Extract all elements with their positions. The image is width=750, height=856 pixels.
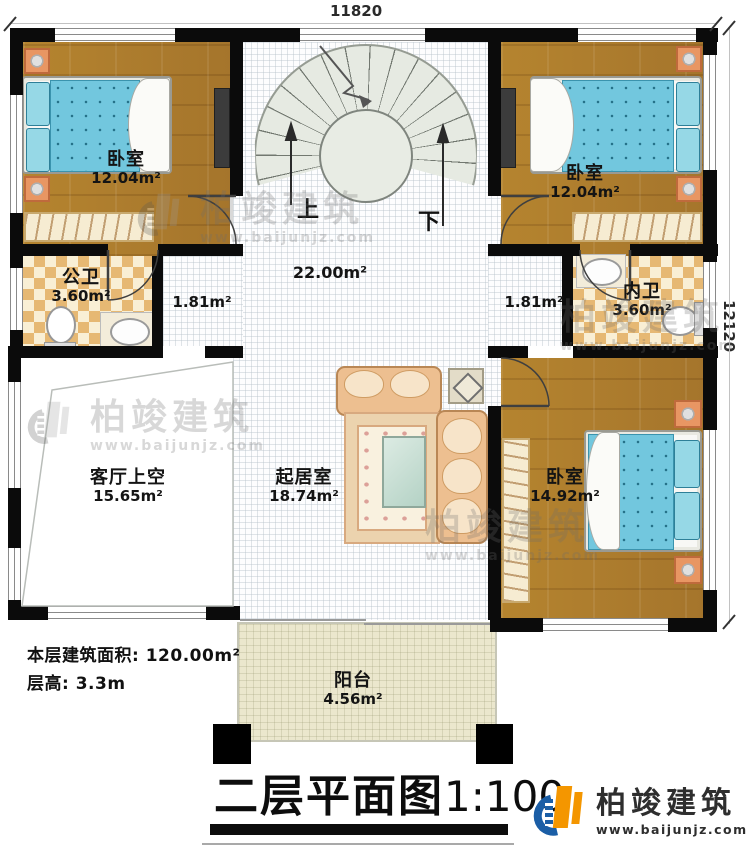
label-bedroom-top-left: 卧室 12.04m²: [66, 150, 186, 187]
room-area: 15.65m²: [48, 488, 208, 505]
label-corridor-left-area: 1.81m²: [142, 293, 262, 311]
wall-segment: [630, 244, 718, 256]
wall-segment: [573, 346, 718, 358]
stair-down-label: 下: [418, 204, 440, 236]
toilet: [46, 306, 76, 344]
label-living-void: 客厅上空 15.65m²: [48, 468, 208, 505]
room-name: 内卫: [582, 282, 702, 302]
label-balcony: 阳台 4.56m²: [293, 671, 413, 708]
logo-windows: [545, 799, 553, 826]
brand-site: www.baijunjz.com: [596, 822, 748, 837]
sofa-cushion: [344, 370, 384, 398]
window: [543, 618, 668, 632]
room-name: 客厅上空: [48, 468, 208, 488]
window: [55, 28, 175, 42]
room-area: 4.56m²: [293, 691, 413, 708]
pillow: [26, 82, 50, 126]
spiral-stair-center: [319, 109, 413, 203]
nightstand: [676, 46, 702, 72]
nightstand: [676, 176, 702, 202]
pillow: [26, 128, 50, 172]
bed-mattress: [562, 80, 674, 172]
wall-segment: [205, 346, 243, 358]
room-area: 12.04m²: [525, 184, 645, 201]
nightstand: [24, 176, 50, 202]
dimension-top-value: 11820: [330, 2, 382, 20]
pillow: [674, 492, 700, 540]
brand-logo-icon: [534, 784, 588, 842]
sofa-cushion: [390, 370, 430, 398]
label-hall-area: 22.00m²: [270, 263, 390, 282]
wall-segment: [8, 346, 163, 358]
pillow: [674, 440, 700, 488]
room-name: 阳台: [293, 671, 413, 691]
wall-segment: [488, 244, 580, 256]
room-name: 卧室: [66, 150, 186, 170]
window: [703, 430, 717, 590]
duvet: [530, 78, 574, 172]
stair-up-label: 上: [297, 192, 319, 224]
title-underline: [210, 824, 508, 835]
wall-segment: [158, 244, 243, 256]
tv: [500, 88, 516, 168]
window: [8, 382, 21, 488]
label-private-bath: 内卫 3.60m²: [582, 282, 702, 319]
dimension-line-top: [10, 23, 716, 24]
wall-segment: [488, 406, 501, 620]
logo-building: [571, 792, 582, 824]
wall-segment: [488, 346, 528, 358]
wardrobe: [24, 212, 154, 242]
room-name: 起居室: [244, 468, 364, 488]
sofa-cushion: [442, 418, 482, 454]
drawing-title: 二层平面图 1:100: [214, 760, 565, 824]
window: [48, 606, 206, 620]
title-underline-thin: [202, 843, 514, 845]
label-family-room: 起居室 18.74m²: [244, 468, 364, 505]
title-text: 二层平面图: [214, 760, 444, 824]
wall-segment: [10, 244, 108, 256]
coffee-table: [382, 436, 426, 508]
room-area: 18.74m²: [244, 488, 364, 505]
label-bedroom-top-right: 卧室 12.04m²: [525, 164, 645, 201]
sink-basin: [110, 318, 150, 346]
tv: [214, 88, 230, 168]
wardrobe: [502, 438, 530, 603]
nightstand: [674, 556, 702, 584]
sofa-cushion: [442, 458, 482, 494]
label-public-bath: 公卫 3.60m²: [21, 268, 141, 305]
label-corridor-right-area: 1.81m²: [474, 293, 594, 311]
room-area: 3.60m²: [582, 302, 702, 319]
window: [703, 55, 717, 170]
nightstand: [24, 48, 50, 74]
brand-name: 柏竣建筑: [596, 789, 748, 819]
column: [476, 724, 513, 764]
room-area: 3.60m²: [21, 288, 141, 305]
label-bedroom-bottom-right: 卧室 14.92m²: [505, 468, 625, 505]
room-name: 卧室: [505, 468, 625, 488]
window: [703, 262, 717, 328]
room-area: 14.92m²: [505, 488, 625, 505]
room-name: 公卫: [21, 268, 141, 288]
floor-plan: 11820 12120 上 下: [0, 0, 750, 856]
window: [300, 28, 425, 42]
sofa-cushion: [442, 498, 482, 534]
window: [578, 28, 696, 42]
window: [10, 95, 23, 213]
wall-segment: [488, 28, 501, 196]
room-name: 卧室: [525, 164, 645, 184]
room-area: 12.04m²: [66, 170, 186, 187]
wall-segment: [230, 28, 243, 196]
column: [213, 724, 251, 764]
pillow: [676, 82, 700, 126]
window: [8, 548, 21, 600]
dimension-line-right: [729, 28, 730, 624]
note-floor-area: 本层建筑面积: 120.00m²: [27, 641, 240, 666]
brand-logo: 柏竣建筑 www.baijunjz.com: [534, 784, 748, 842]
nightstand: [674, 400, 702, 428]
wardrobe: [572, 212, 702, 242]
note-floor-height: 层高: 3.3m: [27, 669, 126, 694]
pillow: [676, 128, 700, 172]
